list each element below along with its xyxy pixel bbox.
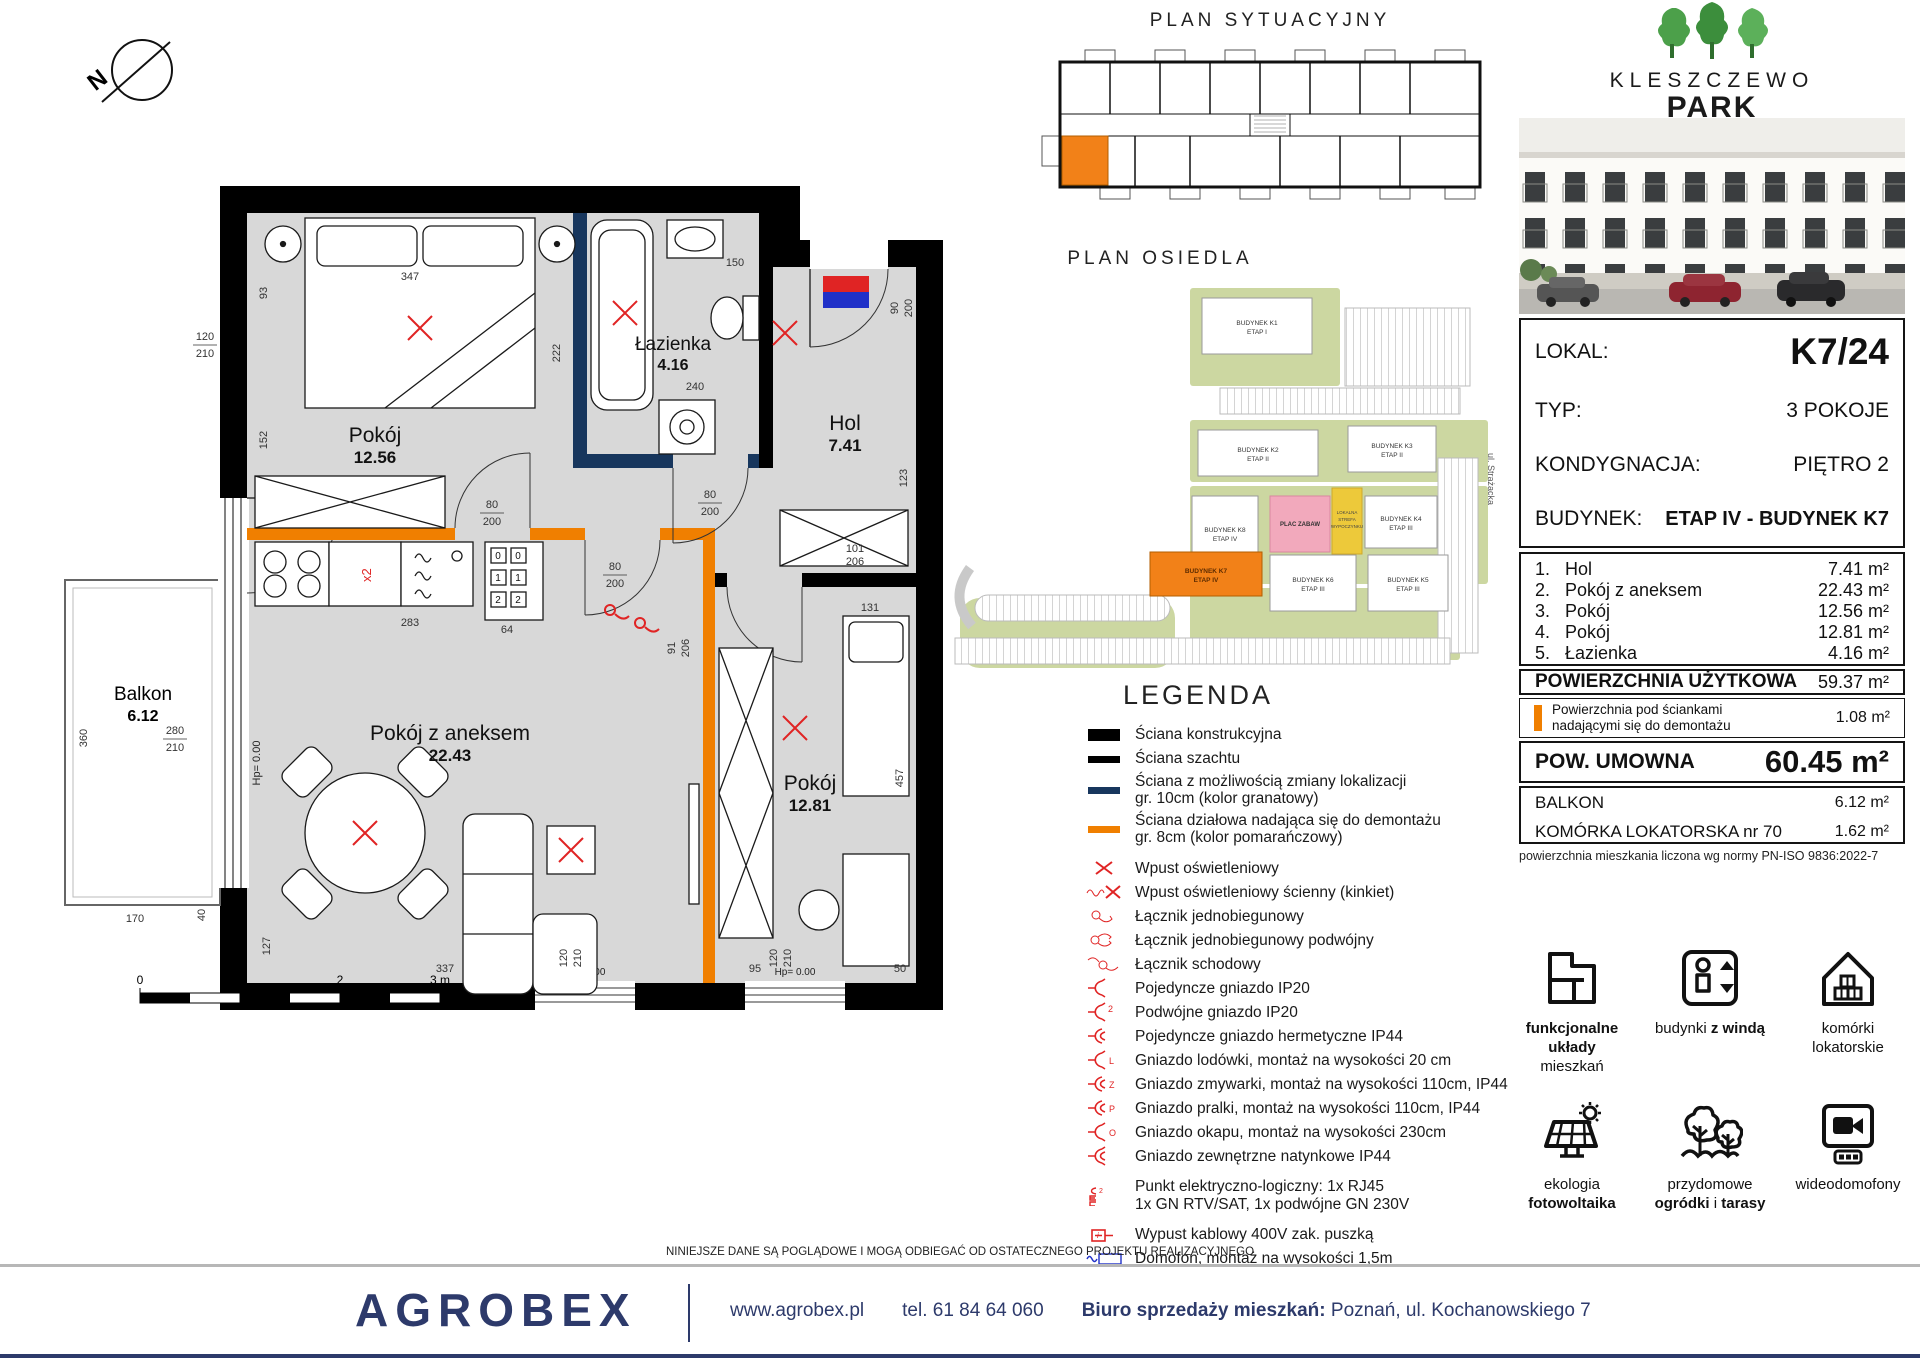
usable-area-row: POWIERZCHNIA UŻYTKOWA 59.37 m²: [1519, 669, 1905, 695]
legend-item: Łącznik jednobiegunowy podwójny: [1085, 930, 1525, 950]
svg-text:1: 1: [495, 573, 501, 584]
feature-garden: przydomoweogródki i tarasy: [1643, 1102, 1777, 1214]
svg-text:80: 80: [609, 561, 621, 573]
svg-text:131: 131: [861, 602, 879, 614]
legend-item-label: Ściana konstrukcyjna: [1135, 726, 1281, 743]
estate-building-label: BUDYNEK K7: [1185, 568, 1228, 575]
svg-text:2: 2: [1099, 1188, 1103, 1195]
road-curve: [959, 568, 972, 626]
wall_navy-legend-icon: [1085, 780, 1125, 800]
svg-text:WYPOCZYNKU: WYPOCZYNKU: [1331, 524, 1363, 529]
legend-item-label: Wpust oświetleniowy ścienny (kinkiet): [1135, 884, 1394, 901]
svg-text:127: 127: [261, 937, 273, 955]
legend-item: 2Punkt elektryczno-logiczny: 1x RJ451x G…: [1085, 1178, 1525, 1213]
plan-sytuacyjny-title: PLAN SYTUACYJNY: [1040, 10, 1500, 32]
svg-text:280: 280: [166, 725, 184, 737]
estate-building-label: ETAP III: [1301, 586, 1325, 593]
legend-item: Ściana konstrukcyjna: [1085, 725, 1525, 745]
legend-item: 2Podwójne gniazdo IP20: [1085, 1002, 1525, 1022]
svg-text:123: 123: [898, 469, 910, 487]
svg-text:80: 80: [486, 499, 498, 511]
floorplan-icon: [1539, 946, 1605, 1010]
svg-text:210: 210: [572, 949, 584, 967]
unit-row-budynek: BUDYNEK: ETAP IV - BUDYNEK K7: [1521, 492, 1903, 546]
cellar-icon: [1815, 946, 1881, 1010]
lacznik_s-legend-icon: [1085, 954, 1125, 974]
feature-label: ekologiafotowoltaika: [1528, 1176, 1616, 1214]
svg-text:Z: Z: [1109, 1080, 1115, 1090]
contract-area-label: POW. UMOWNA: [1535, 750, 1695, 774]
floorplan-brochure: { "compass": {"label": "N"}, "floor_plan…: [0, 0, 1920, 1358]
floor-plan: Balkon 6.12 Hp= 0.00 Hp= 0.00: [55, 178, 960, 1023]
budynek-label: BUDYNEK:: [1535, 507, 1642, 531]
legend-item: LGniazdo lodówki, montaż na wysokości 20…: [1085, 1050, 1525, 1070]
svg-text:210: 210: [166, 742, 184, 754]
svg-text:152: 152: [258, 431, 270, 449]
estate-building-label: BUDYNEK K8: [1204, 527, 1246, 534]
footer-office-label: Biuro sprzedaży mieszkań:: [1082, 1300, 1326, 1321]
svg-text:90: 90: [889, 302, 901, 314]
estate-building-label: ETAP II: [1381, 452, 1403, 459]
kondygnacja-label: KONDYGNACJA:: [1535, 453, 1701, 477]
svg-text:101: 101: [846, 543, 864, 555]
gnP-legend-icon: P: [1085, 1098, 1125, 1118]
svg-text:120: 120: [196, 331, 214, 343]
footer-website: www.agrobex.pl: [730, 1300, 864, 1322]
svg-text:6.12: 6.12: [127, 708, 158, 725]
legend-item-label: Gniazdo zmywarki, montaż na wysokości 11…: [1135, 1076, 1508, 1093]
svg-text:1: 1: [237, 973, 244, 987]
legend-item-label: Gniazdo zewnętrzne natynkowe IP44: [1135, 1148, 1391, 1165]
kondygnacja-value: PIĘTRO 2: [1793, 453, 1889, 477]
svg-text:457: 457: [894, 769, 906, 787]
legend-item-label: Łącznik schodowy: [1135, 956, 1261, 973]
svg-text:40: 40: [196, 909, 208, 921]
svg-text:LOKALNA: LOKALNA: [1337, 510, 1358, 515]
lokal-value: K7/24: [1790, 331, 1889, 373]
feature-label: budynki z windą: [1655, 1020, 1765, 1039]
estate-building-label: ETAP IV: [1194, 577, 1219, 584]
svg-text:Hp= 0.00: Hp= 0.00: [775, 967, 816, 978]
estate-building-label: BUDYNEK K2: [1237, 447, 1279, 454]
usable-area-label: POWIERZCHNIA UŻYTKOWA: [1535, 671, 1797, 693]
svg-text:2: 2: [495, 595, 501, 606]
legend-item: Wpust oświetleniowy ścienny (kinkiet): [1085, 882, 1525, 902]
estate-building-label: BUDYNEK K1: [1236, 320, 1278, 327]
svg-text:Pokój z aneksem: Pokój z aneksem: [370, 722, 530, 745]
svg-text:93: 93: [258, 287, 270, 299]
feature-cellar: komórkilokatorskie: [1781, 946, 1915, 1076]
svg-text:150: 150: [726, 257, 744, 269]
demolition-line2: nadającymi się do demontażu: [1552, 718, 1731, 733]
legend-item: Ściana szachtu: [1085, 749, 1525, 769]
svg-text:0: 0: [515, 551, 521, 562]
legend-item-label: Wypust kablowy 400V zak. puszką: [1135, 1226, 1374, 1243]
feature-label: wideodomofony: [1795, 1176, 1900, 1195]
svg-text:0: 0: [137, 973, 144, 987]
gnL-legend-icon: L: [1085, 1050, 1125, 1070]
room-areas-box: 1.Hol7.41 m²2.Pokój z aneksem22.43 m²3.P…: [1519, 552, 1905, 666]
svg-text:200: 200: [483, 516, 501, 528]
cellar-value: 1.62 m²: [1835, 823, 1889, 841]
svg-text:i: i: [1097, 1231, 1099, 1240]
contract-area-row: POW. UMOWNA 60.45 m²: [1519, 741, 1905, 783]
svg-text:P: P: [1109, 1104, 1115, 1114]
svg-text:Hp= 0.00: Hp= 0.00: [251, 741, 263, 786]
legend-item: iWypust kablowy 400V zak. puszką: [1085, 1225, 1525, 1245]
demolition-area-row: Powierzchnia pod ściankami nadającymi si…: [1519, 698, 1905, 738]
legend-item-label: Gniazdo lodówki, montaż na wysokości 20 …: [1135, 1052, 1451, 1069]
svg-text:50: 50: [894, 963, 906, 975]
playground-label: PLAC ZABAW: [1280, 522, 1320, 528]
norm-note: powierzchnia mieszkania liczona wg normy…: [1519, 849, 1905, 863]
lacznik2-legend-icon: [1085, 930, 1125, 950]
svg-text:170: 170: [126, 913, 144, 925]
svg-text:95: 95: [749, 963, 761, 975]
svg-text:206: 206: [846, 556, 864, 568]
svg-text:2: 2: [337, 973, 344, 987]
svg-text:210: 210: [782, 949, 794, 967]
wall_constr-legend-icon: [1085, 725, 1125, 745]
feature-label: komórkilokatorskie: [1812, 1020, 1884, 1058]
gnZ-legend-icon: Z: [1085, 1074, 1125, 1094]
gnN-legend-icon: [1085, 1146, 1125, 1166]
cellar-label: KOMÓRKA LOKATORSKA nr 70: [1535, 822, 1782, 842]
balcony-cellar-box: BALKON 6.12 m² KOMÓRKA LOKATORSKA nr 70 …: [1519, 786, 1905, 844]
estate-building-label: BUDYNEK K3: [1371, 443, 1413, 450]
plan-osiedla-title: PLAN OSIEDLA: [1040, 248, 1280, 270]
svg-text:200: 200: [903, 299, 915, 317]
estate-building-label: ETAP III: [1389, 525, 1413, 532]
solar-icon: [1539, 1102, 1605, 1166]
gnO-legend-icon: O: [1085, 1122, 1125, 1142]
estate-building-label: ETAP III: [1396, 586, 1420, 593]
legend-item-label: Gniazdo okapu, montaż na wysokości 230cm: [1135, 1124, 1446, 1141]
feature-elevator: budynki z windą: [1643, 946, 1777, 1076]
svg-text:Łazienka: Łazienka: [635, 334, 711, 355]
balcony-value: 6.12 m²: [1835, 794, 1889, 812]
svg-text:200: 200: [606, 578, 624, 590]
tablica-mieszkaniowa-icon: [823, 276, 869, 292]
plan-osiedla: BUDYNEK K1ETAP IBUDYNEK K2ETAP IIBUDYNEK…: [940, 268, 1505, 686]
x-legend-icon: [1085, 858, 1125, 878]
svg-text:91: 91: [666, 642, 678, 654]
orange-wall-swatch-icon: [1534, 705, 1542, 731]
elevator-icon: [1677, 946, 1743, 1010]
svg-text:22.43: 22.43: [429, 746, 472, 765]
agrobex-logo: AGROBEX: [355, 1283, 637, 1337]
gn-legend-icon: [1085, 978, 1125, 998]
svg-text:12.81: 12.81: [789, 796, 832, 815]
svg-text:1: 1: [515, 573, 521, 584]
footer-contacts: www.agrobex.pl tel. 61 84 64 060 Biuro s…: [730, 1300, 1591, 1322]
svg-text:12.56: 12.56: [354, 448, 397, 467]
svg-text:360: 360: [78, 729, 90, 747]
svg-text:0: 0: [495, 551, 501, 562]
legend-item: Gniazdo zewnętrzne natynkowe IP44: [1085, 1146, 1525, 1166]
feature-floorplan: funkcjonalne układymieszkań: [1505, 946, 1639, 1076]
room-area-row: 3.Pokój12.56 m²: [1521, 601, 1903, 622]
legend-item: Pojedyncze gniazdo hermetyczne IP44: [1085, 1026, 1525, 1046]
compass-n-label: N: [86, 64, 113, 96]
svg-text:64: 64: [501, 624, 513, 636]
svg-text:283: 283: [401, 617, 419, 629]
legend-item-label: Ściana szachtu: [1135, 750, 1240, 767]
feature-label: przydomoweogródki i tarasy: [1655, 1176, 1766, 1214]
highlighted-unit: [1062, 136, 1108, 185]
gn2-legend-icon: 2: [1085, 1002, 1125, 1022]
legend-list: Ściana konstrukcyjnaŚciana szachtuŚciana…: [1085, 725, 1525, 1293]
footer-office-address: Poznań, ul. Kochanowskiego 7: [1331, 1300, 1591, 1321]
punkt-legend-icon: 2: [1085, 1186, 1125, 1206]
svg-text:x2: x2: [359, 568, 374, 582]
building-render-photo: [1519, 118, 1905, 314]
legend-item: Łącznik schodowy: [1085, 954, 1525, 974]
kinkiet-legend-icon: [1085, 882, 1125, 902]
svg-text:80: 80: [704, 489, 716, 501]
legend-item-label: Podwójne gniazdo IP20: [1135, 1004, 1298, 1021]
footer-vertical-divider: [688, 1284, 690, 1342]
svg-text:L: L: [1109, 1056, 1114, 1066]
wall_shaft-legend-icon: [1085, 749, 1125, 769]
svg-text:3 m: 3 m: [430, 973, 450, 987]
wypust-legend-icon: i: [1085, 1225, 1125, 1245]
features-grid: funkcjonalne układymieszkańbudynki z win…: [1505, 946, 1915, 1214]
brand-name-line1: KLESZCZEWO: [1519, 69, 1905, 93]
legend-item: Wpust oświetleniowy: [1085, 858, 1525, 878]
legend-item: Ściana działowa nadająca się do demontaż…: [1085, 812, 1525, 847]
legend-item-label: Punkt elektryczno-logiczny: 1x RJ451x GN…: [1135, 1178, 1409, 1213]
legend-item-label: Wpust oświetleniowy: [1135, 860, 1279, 877]
svg-text:210: 210: [196, 348, 214, 360]
budynek-value: ETAP IV - BUDYNEK K7: [1665, 508, 1889, 531]
plan-sytuacyjny: [1040, 32, 1500, 244]
disclaimer: NINIEJSZE DANE SĄ POGLĄDOWE I MOGĄ ODBIE…: [0, 1246, 1920, 1258]
svg-text:4.16: 4.16: [657, 357, 688, 374]
legend-item: PGniazdo pralki, montaż na wysokości 110…: [1085, 1098, 1525, 1118]
svg-text:Pokój: Pokój: [784, 772, 837, 795]
demolition-value: 1.08 m²: [1836, 709, 1890, 727]
brand-logo: KLESZCZEWO PARK: [1519, 0, 1905, 118]
svg-text:222: 222: [551, 344, 563, 362]
svg-text:Hol: Hol: [829, 412, 861, 435]
legend-item-label: Łącznik jednobiegunowy podwójny: [1135, 932, 1374, 949]
feature-videophone: wideodomofony: [1781, 1102, 1915, 1214]
svg-text:7.41: 7.41: [828, 436, 861, 455]
estate-building-label: BUDYNEK K6: [1292, 577, 1334, 584]
garden-icon: [1677, 1102, 1743, 1166]
unit-info-box: LOKAL: K7/24 TYP: 3 POKOJE KONDYGNACJA: …: [1519, 318, 1905, 548]
lacznik1-legend-icon: [1085, 906, 1125, 926]
feature-label: funkcjonalne układymieszkań: [1505, 1020, 1639, 1076]
svg-text:Balkon: Balkon: [114, 684, 172, 705]
svg-text:STREFA: STREFA: [1338, 517, 1356, 522]
estate-building-label: ETAP I: [1247, 329, 1267, 336]
north-compass-icon: N: [86, 30, 181, 112]
svg-text:2: 2: [1108, 1004, 1113, 1014]
contract-area-value: 60.45 m²: [1765, 744, 1889, 780]
legend-title: LEGENDA: [1123, 680, 1525, 711]
svg-text:O: O: [1109, 1128, 1116, 1138]
wall_orange-legend-icon: [1085, 819, 1125, 839]
room-area-row: 4.Pokój12.81 m²: [1521, 622, 1903, 643]
typ-label: TYP:: [1535, 399, 1582, 423]
typ-value: 3 POKOJE: [1786, 399, 1889, 423]
legend-item-label: Ściana działowa nadająca się do demontaż…: [1135, 812, 1441, 847]
svg-text:200: 200: [701, 506, 719, 518]
street-label: ul. Strażacka: [1486, 453, 1496, 505]
room-area-row: 1.Hol7.41 m²: [1521, 559, 1903, 580]
room-area-row: 2.Pokój z aneksem22.43 m²: [1521, 580, 1903, 601]
room-area-row: 5.Łazienka4.16 m²: [1521, 643, 1903, 664]
trees-logo-icon: [1652, 0, 1772, 62]
balcony-label: BALKON: [1535, 793, 1604, 813]
legend-item: Łącznik jednobiegunowy: [1085, 906, 1525, 926]
legend: LEGENDA Ściana konstrukcyjnaŚciana szach…: [1085, 680, 1525, 1297]
svg-text:347: 347: [401, 271, 419, 283]
svg-text:Pokój: Pokój: [349, 424, 402, 447]
lokal-label: LOKAL:: [1535, 340, 1609, 364]
estate-building-label: ETAP IV: [1213, 536, 1238, 543]
legend-item-label: Gniazdo pralki, montaż na wysokości 110c…: [1135, 1100, 1480, 1117]
unit-row-lokal: LOKAL: K7/24: [1521, 320, 1903, 384]
svg-text:206: 206: [680, 639, 692, 657]
svg-text:2: 2: [515, 595, 521, 606]
footer-phone: tel. 61 84 64 060: [902, 1300, 1044, 1322]
footer-bottom-bar: [0, 1354, 1920, 1358]
legend-item-label: Pojedyncze gniazdo IP20: [1135, 980, 1310, 997]
usable-area-value: 59.37 m²: [1818, 672, 1889, 693]
feature-solar: ekologiafotowoltaika: [1505, 1102, 1639, 1214]
gnh-legend-icon: [1085, 1026, 1125, 1046]
legend-item: OGniazdo okapu, montaż na wysokości 230c…: [1085, 1122, 1525, 1142]
svg-text:120: 120: [768, 949, 780, 967]
unit-row-kondygnacja: KONDYGNACJA: PIĘTRO 2: [1521, 438, 1903, 492]
svg-text:240: 240: [686, 381, 704, 393]
estate-building-label: BUDYNEK K4: [1380, 516, 1422, 523]
legend-item-label: Ściana z możliwością zmiany lokalizacjig…: [1135, 773, 1406, 808]
legend-item-label: Łącznik jednobiegunowy: [1135, 908, 1304, 925]
legend-item-label: Pojedyncze gniazdo hermetyczne IP44: [1135, 1028, 1403, 1045]
videophone-icon: [1815, 1102, 1881, 1166]
svg-text:120: 120: [558, 949, 570, 967]
estate-building-label: ETAP II: [1247, 456, 1269, 463]
unit-row-typ: TYP: 3 POKOJE: [1521, 384, 1903, 438]
demolition-line1: Powierzchnia pod ściankami: [1552, 702, 1722, 717]
legend-item: Ściana z możliwością zmiany lokalizacjig…: [1085, 773, 1525, 808]
legend-item: ZGniazdo zmywarki, montaż na wysokości 1…: [1085, 1074, 1525, 1094]
legend-item: Pojedyncze gniazdo IP20: [1085, 978, 1525, 998]
estate-building-label: BUDYNEK K5: [1387, 577, 1429, 584]
